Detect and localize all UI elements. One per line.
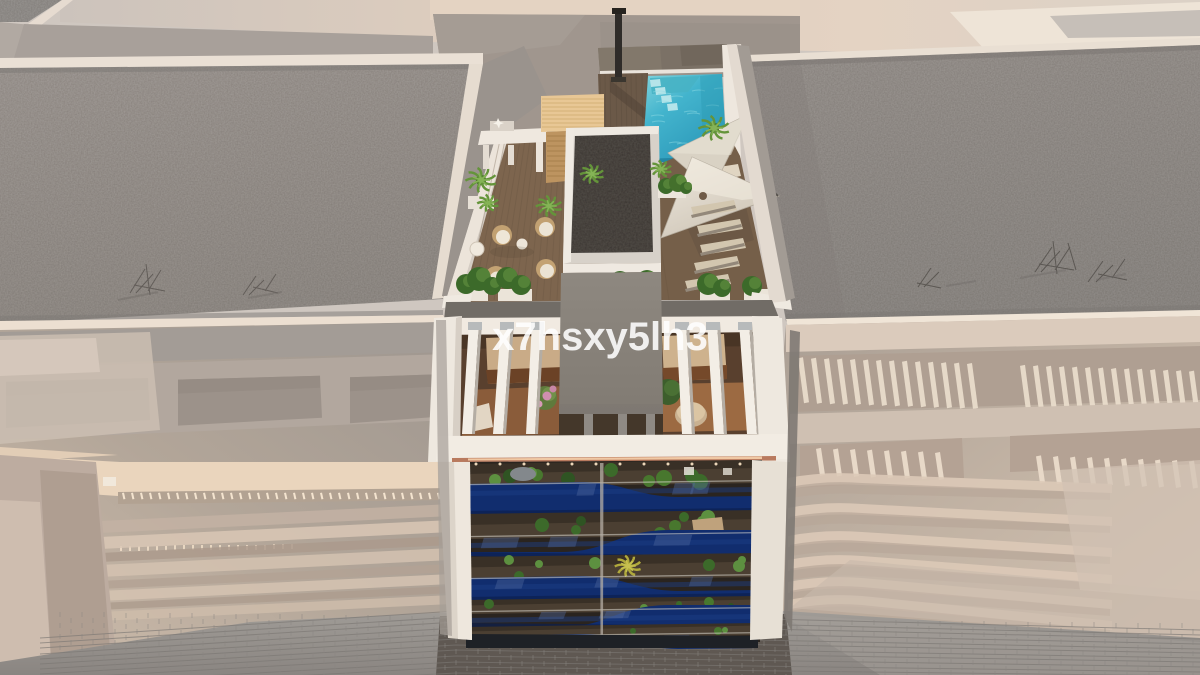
svg-text:x7hsxy5lh3: x7hsxy5lh3 xyxy=(492,315,708,359)
